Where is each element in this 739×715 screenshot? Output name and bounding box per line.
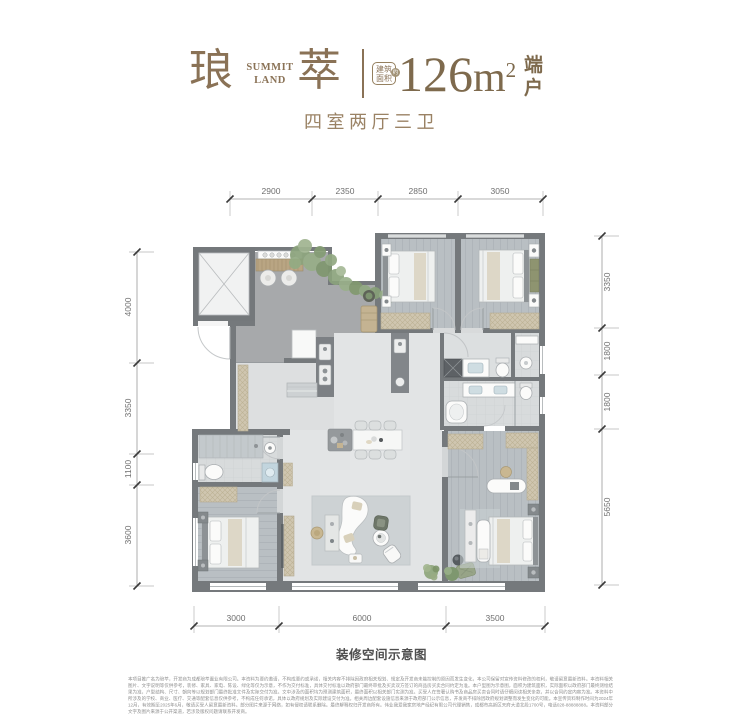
- svg-text:3000: 3000: [227, 613, 246, 623]
- svg-text:3500: 3500: [486, 613, 505, 623]
- svg-text:5650: 5650: [602, 497, 612, 516]
- svg-text:2900: 2900: [262, 186, 281, 196]
- svg-text:3350: 3350: [602, 272, 612, 291]
- svg-text:2350: 2350: [336, 186, 355, 196]
- svg-text:3050: 3050: [491, 186, 510, 196]
- svg-text:3600: 3600: [123, 525, 133, 544]
- svg-text:4000: 4000: [123, 297, 133, 316]
- svg-text:3350: 3350: [123, 398, 133, 417]
- svg-text:2850: 2850: [409, 186, 428, 196]
- svg-text:1100: 1100: [123, 460, 133, 479]
- svg-text:6000: 6000: [353, 613, 372, 623]
- svg-text:1800: 1800: [602, 392, 612, 411]
- svg-text:1800: 1800: [602, 341, 612, 360]
